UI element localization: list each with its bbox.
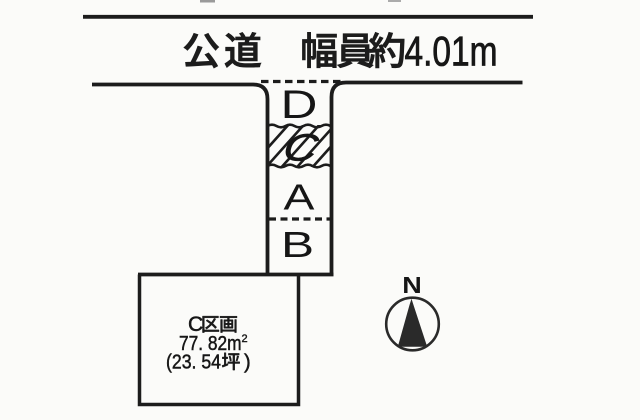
svg-text:2: 2	[242, 333, 248, 345]
svg-text:4.01m: 4.01m	[405, 28, 498, 75]
svg-text:A: A	[284, 176, 315, 217]
svg-text:N: N	[402, 273, 422, 299]
svg-text:(23. 54: (23. 54	[166, 352, 221, 374]
svg-text:D: D	[281, 81, 318, 126]
svg-text:): )	[244, 352, 251, 374]
svg-text:B: B	[281, 225, 314, 265]
